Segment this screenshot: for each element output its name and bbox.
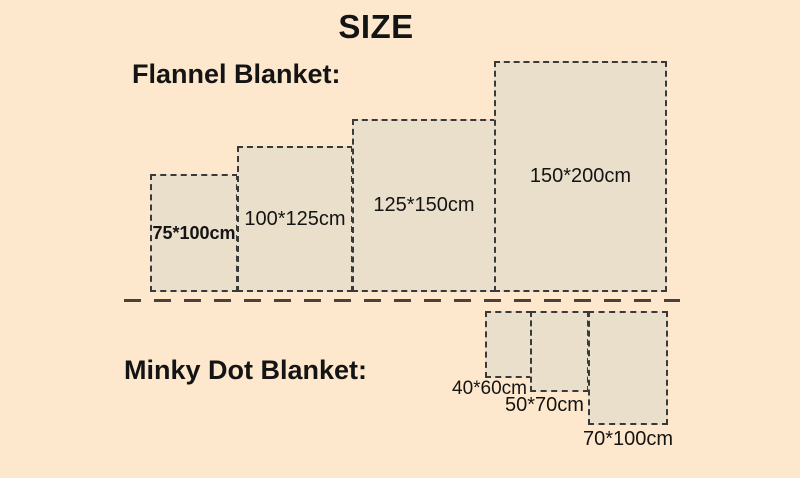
flannel-rect-150x200: 150*200cm: [494, 61, 667, 292]
flannel-section-label: Flannel Blanket:: [132, 59, 341, 90]
flannel-rect-125x150: 125*150cm: [352, 119, 496, 292]
page-title: SIZE: [0, 8, 752, 46]
size-label: 100*125cm: [244, 208, 345, 231]
flannel-rect-75x100: 75*100cm: [150, 174, 238, 292]
size-label: 150*200cm: [530, 165, 631, 188]
minky-section-label: Minky Dot Blanket:: [124, 355, 367, 386]
size-chart: SIZE Flannel Blanket: 75*100cm 100*125cm…: [0, 0, 800, 478]
flannel-rect-100x125: 100*125cm: [237, 146, 353, 292]
size-label: 70*100cm: [583, 428, 673, 451]
size-label: 75*100cm: [152, 223, 235, 244]
minky-rect-40x60: [485, 311, 532, 378]
minky-rect-50x70: [530, 311, 589, 392]
divider-line: [124, 299, 680, 302]
minky-rect-70x100: [588, 311, 668, 425]
size-label: 125*150cm: [373, 194, 474, 217]
size-label: 50*70cm: [505, 394, 584, 417]
